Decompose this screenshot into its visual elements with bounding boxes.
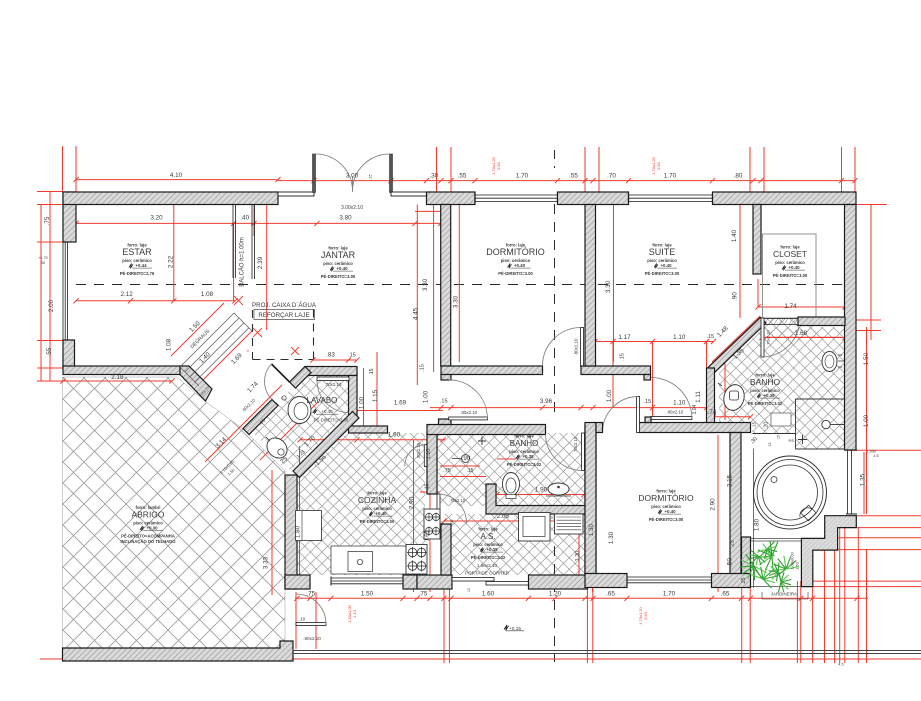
svg-text:1.17: 1.17 [618,334,631,341]
svg-text:A.S.: A.S. [480,532,495,541]
svg-text:.15: .15 [369,368,375,375]
svg-text:.70x2.10: .70x2.10 [766,330,771,346]
svg-text:.15: .15 [467,468,474,474]
svg-text:forro: laje: forro: laje [514,434,534,439]
svg-text:JARDINEIRA: JARDINEIRA [771,592,797,597]
svg-text:COZINHA: COZINHA [358,495,397,505]
svg-text:PÉ-DIREITO=3.00: PÉ-DIREITO=3.00 [314,418,349,423]
svg-text:4.45: 4.45 [412,307,419,320]
svg-text:LAVABO: LAVABO [307,396,338,405]
svg-text:.90: .90 [731,292,738,301]
svg-text:1.00: 1.00 [359,396,366,409]
svg-text:2.22: 2.22 [167,255,174,268]
svg-text:1.08: 1.08 [165,338,172,351]
svg-text:1.10: 1.10 [352,609,357,618]
svg-text:1.30: 1.30 [588,523,595,536]
svg-text:0.90: 0.90 [643,611,648,620]
svg-text:1.90: 1.90 [535,487,548,494]
svg-text:1.00: 1.00 [606,389,613,402]
svg-text:1.20: 1.20 [549,591,562,598]
svg-text:.55: .55 [569,173,578,180]
svg-text:forro: laje: forro: laje [478,527,498,532]
svg-text:2.90: 2.90 [409,496,416,509]
svg-text:.55: .55 [46,347,53,356]
svg-text:1.30: 1.30 [575,551,581,562]
svg-text:RS: RS [788,438,794,443]
svg-text:.50: .50 [727,558,734,567]
svg-text:+0.30: +0.30 [146,526,158,531]
svg-text:BANHO: BANHO [510,439,538,448]
svg-text:.25: .25 [741,577,747,584]
svg-text:+0.40: +0.40 [336,266,348,271]
svg-text:PÉ-DIREITO=3.02: PÉ-DIREITO=3.02 [748,401,783,406]
svg-text:3.33: 3.33 [263,556,270,569]
svg-text:.80: .80 [734,173,743,180]
svg-text:PÉ-DIREITO=ACOMPANHA: PÉ-DIREITO=ACOMPANHA [121,534,175,539]
svg-text:.15: .15 [752,421,757,428]
svg-text:.80x2.10: .80x2.10 [303,636,321,641]
svg-text:.74: .74 [708,409,717,416]
svg-text:PÉ-DIREITO=3.00: PÉ-DIREITO=3.00 [360,519,395,524]
svg-text:PROJ. CAIXA D´ÁGUA: PROJ. CAIXA D´ÁGUA [252,302,317,309]
svg-text:.80x2.10: .80x2.10 [573,338,578,355]
svg-text:.80x2.10: .80x2.10 [666,410,683,415]
svg-text:.02: .02 [449,518,454,524]
svg-text:PÉ-DIREITO=3.00: PÉ-DIREITO=3.00 [321,274,356,279]
svg-text:1.65: 1.65 [425,531,431,542]
svg-text:INCLINAÇÃO DO TELHADO: INCLINAÇÃO DO TELHADO [120,539,176,544]
svg-text:1.50: 1.50 [361,591,374,598]
svg-text:BANHO: BANHO [750,377,781,387]
svg-text:CLOSET: CLOSET [773,249,807,259]
svg-text:3.80: 3.80 [339,215,352,222]
svg-text:1.30: 1.30 [608,531,615,544]
svg-text:1.04: 1.04 [692,404,698,414]
svg-text:.90: .90 [462,455,471,462]
svg-text:+0.38: +0.38 [486,547,498,552]
svg-text:REFORÇAR LAJE: REFORÇAR LAJE [258,312,309,319]
svg-text:.75: .75 [443,468,451,474]
svg-text:2.12: 2.12 [120,291,133,298]
svg-text:1.80: 1.80 [295,525,302,538]
svg-text:15: 15 [768,443,772,447]
svg-text:.15: .15 [368,173,373,179]
svg-text:PORTA DE CORRER: PORTA DE CORRER [465,571,510,576]
svg-text:.15: .15 [644,399,652,405]
svg-text:1.60x2.10: 1.60x2.10 [477,563,498,568]
svg-text:0.90: 0.90 [496,161,501,170]
svg-text:.65: .65 [606,591,615,598]
svg-text:.70x2.10: .70x2.10 [449,498,466,503]
svg-text:PÉ-DIREITO=3.02: PÉ-DIREITO=3.02 [471,555,506,560]
svg-text:1.35: 1.35 [860,473,867,486]
svg-text:.15: .15 [706,334,714,340]
svg-text:+0.40: +0.40 [321,409,333,414]
svg-text:.25: .25 [729,540,735,548]
svg-text:+0.40: +0.40 [788,265,800,270]
svg-text:50: 50 [41,261,45,265]
svg-text:+0.40: +0.40 [514,263,526,268]
svg-text:3.00x2.10: 3.00x2.10 [341,205,363,211]
svg-text:.15: .15 [425,483,431,490]
svg-text:.70x2.10: .70x2.10 [573,436,578,453]
svg-text:2.15: 2.15 [727,474,734,487]
svg-text:PÉ-DIREITO=3.00: PÉ-DIREITO=3.00 [649,517,684,522]
svg-text:.15: .15 [420,364,426,372]
svg-text:PÉ-DIREITO=3.02: PÉ-DIREITO=3.02 [507,462,542,467]
svg-text:4.10: 4.10 [170,172,183,179]
svg-text:0.90: 0.90 [656,161,661,170]
svg-text:.75: .75 [44,216,51,225]
svg-text:1.50: 1.50 [863,352,870,365]
svg-text:+0.40: +0.40 [664,509,676,514]
svg-text:3.30: 3.30 [452,295,459,308]
svg-text:+0.44: +0.44 [135,263,147,268]
svg-text:.75: .75 [306,591,315,598]
svg-text:BALCÃO h=1.00m: BALCÃO h=1.00m [239,237,246,287]
svg-text:.70x2.10: .70x2.10 [325,382,342,387]
svg-text:1.70: 1.70 [664,173,677,180]
svg-text:.15: .15 [348,353,356,359]
svg-text:+0.38: +0.38 [763,393,775,398]
svg-text:.55: .55 [458,173,467,180]
svg-text:1.69: 1.69 [394,400,407,407]
svg-text:1.50: 1.50 [795,561,800,570]
svg-text:1.70: 1.70 [663,591,676,598]
svg-text:JANTAR: JANTAR [321,250,356,260]
svg-text:.80x2.10: .80x2.10 [460,410,477,415]
svg-text:1.15: 1.15 [372,389,379,402]
svg-text:DORMITÓRIO: DORMITÓRIO [486,247,545,257]
svg-text:PÉ-DIREITO=3.00: PÉ-DIREITO=3.00 [773,273,808,278]
svg-text:.70: .70 [607,173,616,180]
svg-text:.80x2.10: .80x2.10 [416,442,421,459]
svg-text:PÉ-DIREITO=3.00: PÉ-DIREITO=3.00 [498,271,533,276]
svg-text:.15: .15 [440,399,448,405]
svg-text:1.00: 1.00 [423,390,430,403]
svg-text:1.74: 1.74 [784,303,797,310]
svg-text:1.11: 1.11 [695,391,702,403]
svg-text:ESTAR: ESTAR [122,247,152,257]
svg-text:3.30: 3.30 [605,280,612,293]
svg-text:PÉ-DIREITO=2,76: PÉ-DIREITO=2,76 [120,271,155,276]
svg-text:1.10: 1.10 [673,400,686,407]
svg-text:3.30: 3.30 [422,278,429,291]
svg-text:X: X [247,348,250,353]
svg-text:.10: .10 [299,617,306,622]
svg-text:1.10: 1.10 [426,449,432,460]
svg-text:+0.38: +0.38 [522,454,534,459]
svg-text:1.60: 1.60 [482,591,495,598]
svg-text:ABRIGO: ABRIGO [131,510,164,520]
svg-text:1.5: 1.5 [873,453,879,458]
svg-text:.15: .15 [619,353,625,361]
svg-text:1.70: 1.70 [516,173,529,180]
svg-text:.65: .65 [721,591,730,598]
svg-text:.20: .20 [763,422,769,430]
svg-text:+0.40: +0.40 [660,263,672,268]
svg-text:PÉ-DIREITO=3.00: PÉ-DIREITO=3.00 [645,271,680,276]
svg-text:1.08: 1.08 [201,291,214,298]
svg-text:.30: .30 [429,173,438,180]
svg-text:1.90: 1.90 [388,432,401,439]
svg-text:.40: .40 [240,215,249,222]
svg-text:1.68: 1.68 [795,330,808,337]
svg-text:DORMITÓRIO: DORMITÓRIO [638,493,694,503]
svg-text:1.00: 1.00 [863,414,870,427]
svg-text:15: 15 [777,435,781,439]
svg-text:.75: .75 [419,591,428,598]
svg-text:2.39: 2.39 [257,256,264,269]
svg-text:2.18: 2.18 [111,374,124,381]
svg-text:3.20: 3.20 [150,215,163,222]
svg-text:1.10: 1.10 [673,334,686,341]
svg-text:3.00: 3.00 [346,173,359,180]
svg-text:SUITE: SUITE [649,247,676,257]
svg-text:2.90: 2.90 [709,498,716,511]
svg-text:2.00: 2.00 [48,299,55,312]
svg-text:1.80: 1.80 [753,518,760,531]
svg-text:3.96: 3.96 [540,398,553,405]
svg-text:12: 12 [467,588,471,592]
svg-text:1.40: 1.40 [731,229,738,242]
svg-text:+1.70: +1.70 [38,256,48,260]
svg-text:2.05: 2.05 [497,513,510,520]
svg-text:4.5: 4.5 [838,662,844,667]
svg-text:+0.40: +0.40 [375,511,387,516]
svg-text:.83: .83 [326,352,335,359]
